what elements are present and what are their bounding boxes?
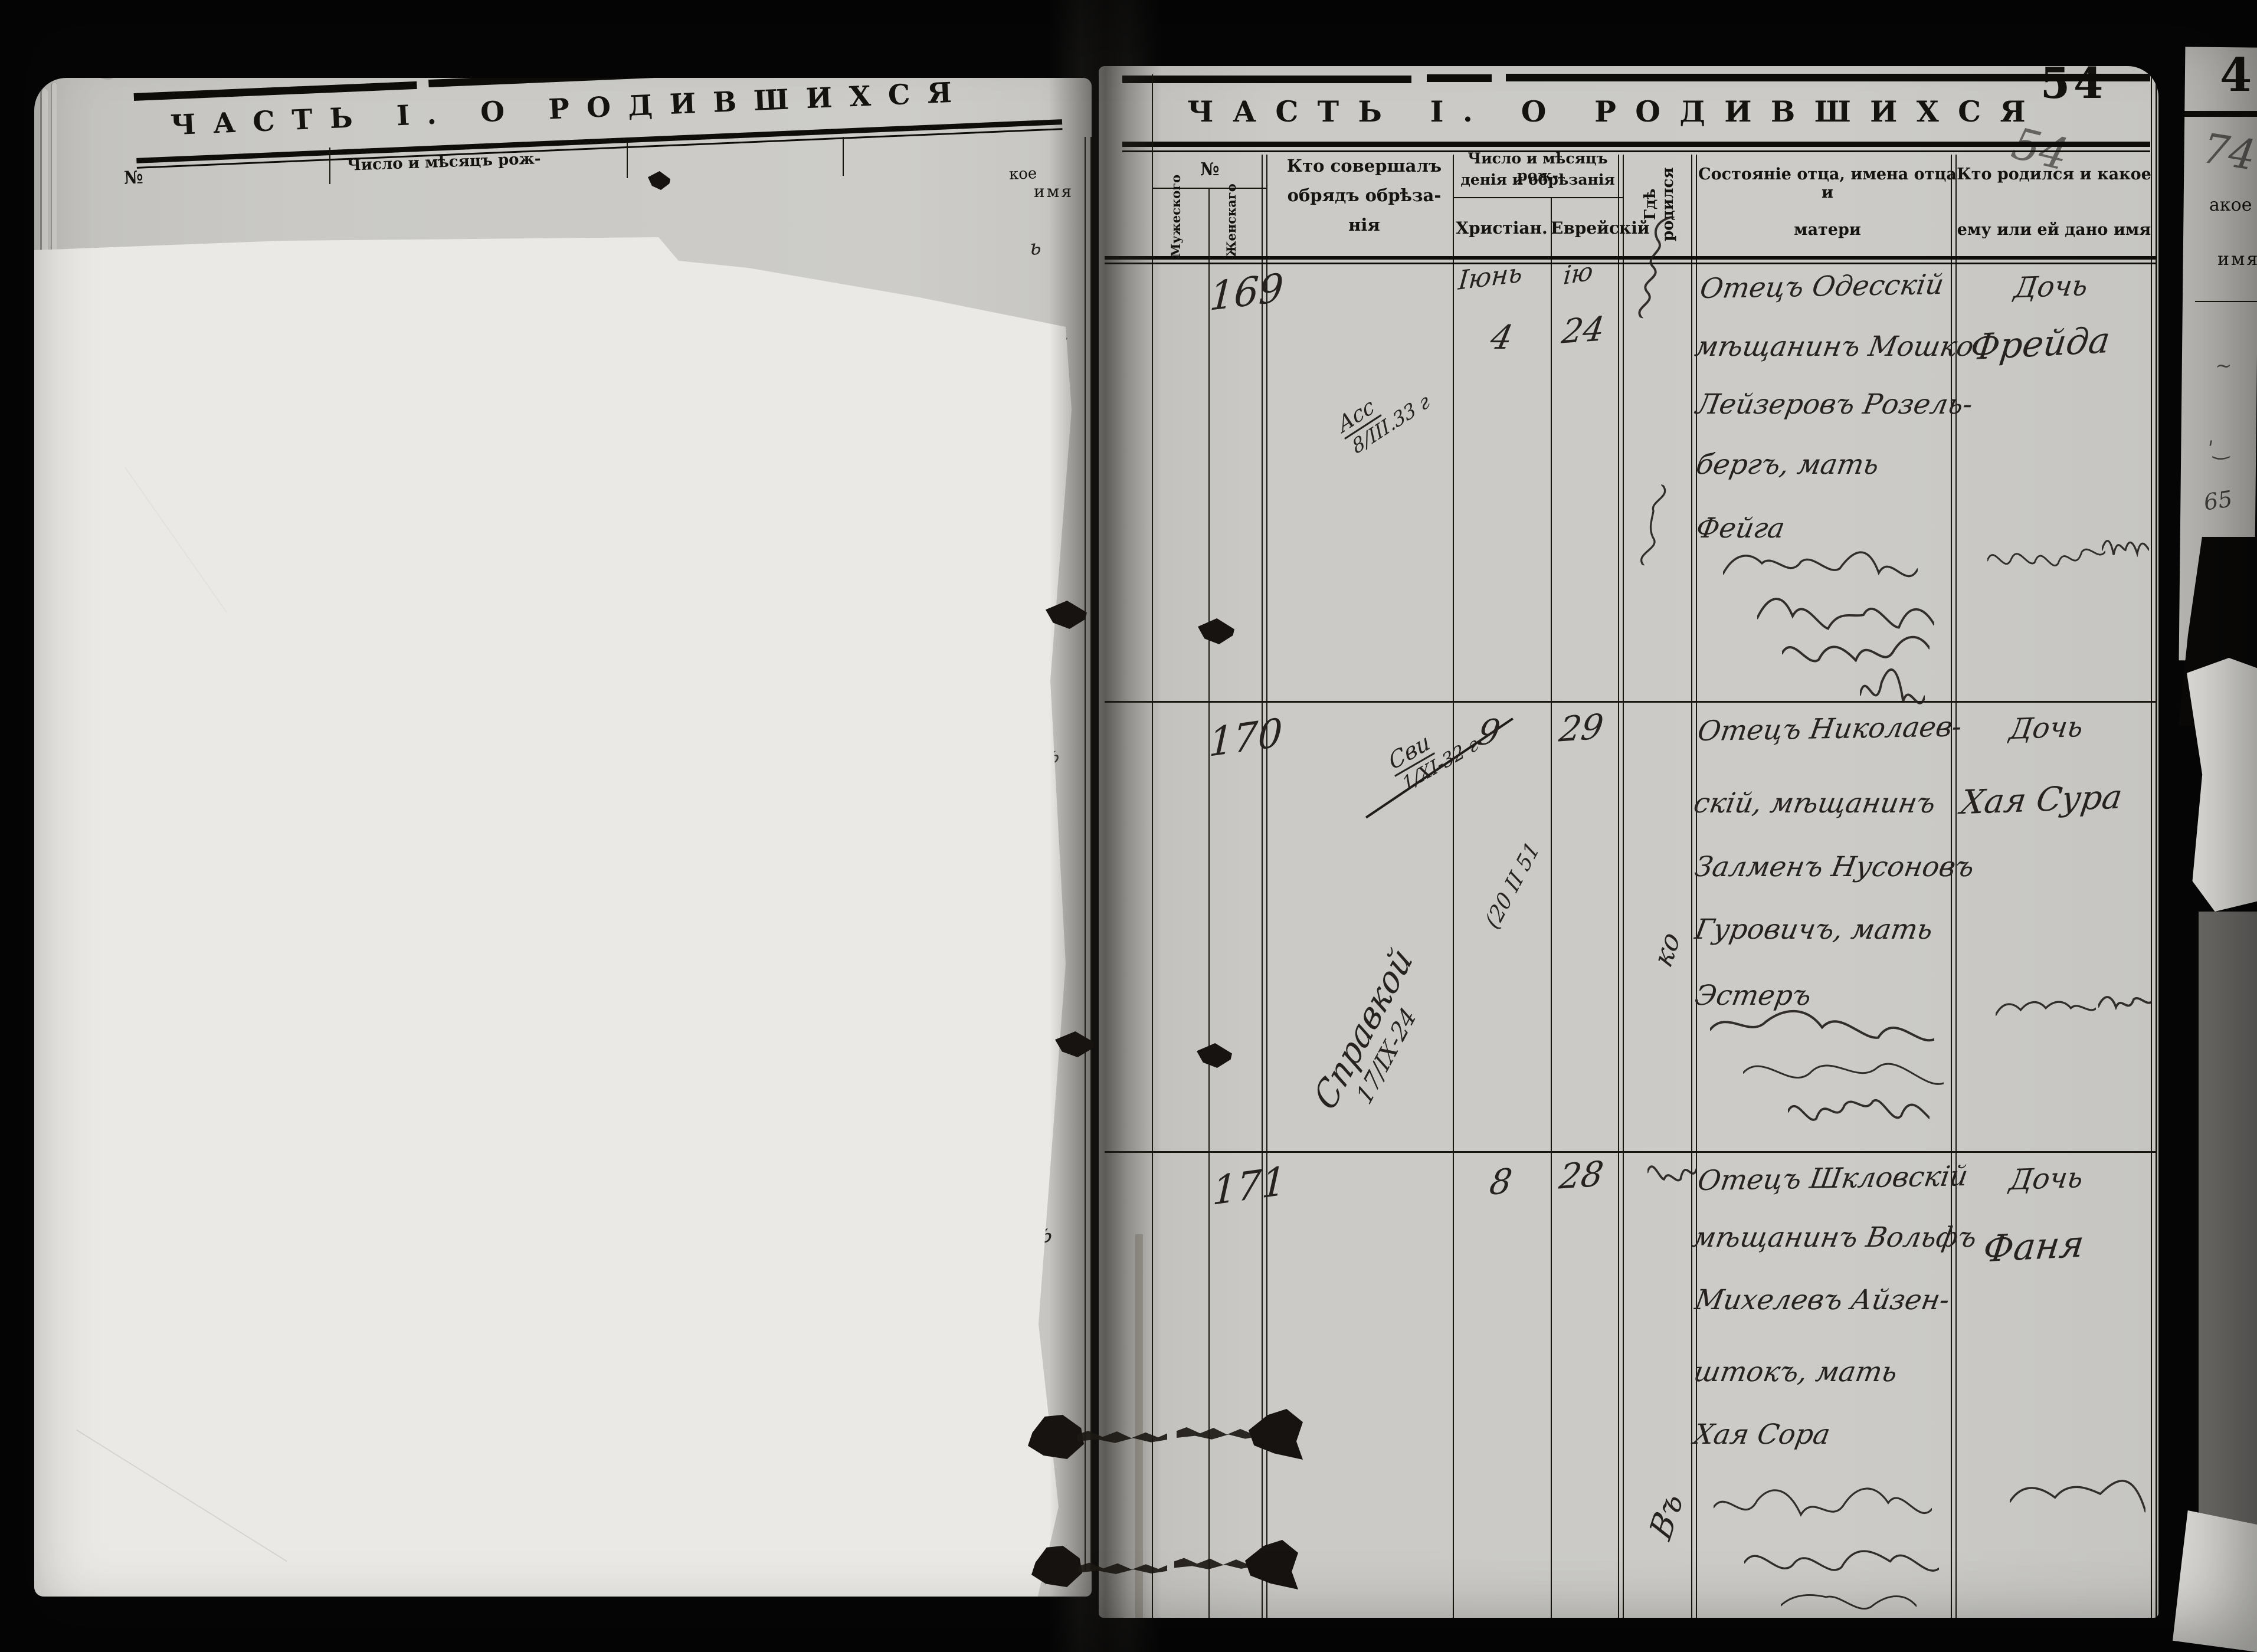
- right-page: 54 54 ЧАСТЬ I. О РОДИВШИХСЯ № Мужеского …: [1099, 66, 2158, 1618]
- col-header-child-2: ему или ей дано имя: [1957, 221, 2151, 239]
- printed-page-number: 54: [2040, 66, 2107, 108]
- father-record-line: Фейга: [1693, 512, 1787, 545]
- entry-number: 170: [1208, 709, 1283, 766]
- father-record-line: Отецъ Одесскій: [1698, 268, 1946, 305]
- hebrew-cursive-note: [1757, 595, 1934, 637]
- father-record-line: штокъ, мать: [1691, 1356, 1900, 1388]
- hebrew-cursive-note: [1723, 551, 1918, 592]
- table-line: [2156, 74, 2157, 1618]
- table-line: [1262, 155, 1263, 1618]
- hebrew-cursive-note: [1996, 999, 2096, 1028]
- behind-hw-fragment-2: ꞌ‿: [2208, 437, 2230, 460]
- col-header-officiant-3: нія: [1276, 215, 1453, 235]
- father-record-line: мѣщанинъ Вольфъ: [1690, 1221, 1979, 1254]
- binding-thread: [1135, 1234, 1143, 1618]
- behind-hw-fragment-1: ~: [2215, 354, 2232, 378]
- col-header-officiant-2: обрядъ обрѣза-: [1276, 185, 1453, 205]
- left-rule-top-a: [134, 81, 417, 101]
- col-header-child-1: Кто родился и какое: [1957, 165, 2151, 183]
- behind-bottom-torn-paper: [2173, 1510, 2257, 1652]
- father-record-line: Отецъ Шкловскій: [1695, 1160, 1970, 1197]
- right-page-title: ЧАСТЬ I. О РОДИВШИХСЯ: [1187, 94, 2045, 129]
- col-header-jewish: Еврейскій: [1551, 218, 1623, 238]
- behind-page-strip: 4 74 акое имя ~ ꞌ‿ 65: [2161, 24, 2257, 1652]
- table-line: [1951, 155, 1952, 1618]
- father-record-line: Лейзеровъ Розель-: [1693, 388, 1975, 421]
- child-name: Хая Сура: [1958, 778, 2125, 822]
- col-header-female: Женскаго: [1224, 191, 1239, 257]
- reference-annotation-diagonal: Справкой 17/ІХ-24: [1306, 939, 1447, 1124]
- christian-day: 9: [1475, 711, 1502, 753]
- behind-rule-mid: [2195, 301, 2257, 302]
- birthplace-script: ко: [1647, 926, 1686, 972]
- left-fragment-imya: имя: [1034, 182, 1073, 201]
- table-line: [1208, 188, 1210, 1618]
- ink-blot: [648, 171, 670, 190]
- behind-white-edge: [2187, 658, 2257, 912]
- christian-day: 4: [1487, 319, 1516, 357]
- scanned-register-spread: 4 74 акое имя ~ ꞌ‿ 65 53 ЧАСТЬ I. О РОДИ…: [0, 0, 2257, 1652]
- right-rule-top-c: [1506, 74, 2150, 81]
- hebrew-cursive-note: [1987, 542, 2105, 576]
- officiant-annotation: Асс 8/ІІІ.33 г: [1335, 367, 1436, 457]
- birthplace-flourish: [1647, 1155, 1697, 1186]
- child-title: Дочь: [2007, 710, 2085, 746]
- behind-fragment-kakoe: акое: [2209, 195, 2252, 215]
- birthplace-script: Въ: [1643, 1486, 1690, 1546]
- left-col-no: №: [123, 167, 143, 188]
- sheet-crease: [125, 467, 227, 613]
- table-line: [2151, 74, 2152, 1618]
- hebrew-cursive-note: [1744, 1540, 1939, 1581]
- hebrew-cursive-note: [1782, 632, 1930, 670]
- left-col-line-1: [329, 147, 330, 184]
- father-record-line: Хая Сора: [1691, 1418, 1833, 1451]
- behind-fragment-imya: имя: [2217, 249, 2257, 270]
- table-line: [1623, 155, 1624, 1618]
- right-rule-title-b: [1122, 150, 2150, 152]
- small-date-annotation: (20 ІІ 51: [1481, 837, 1544, 933]
- birthplace-script: [1631, 482, 1676, 568]
- header-bottom-rule-b: [1105, 263, 2156, 264]
- left-edge-rule-b: [1090, 137, 1092, 1571]
- child-title: Дочь: [2007, 1161, 2085, 1197]
- col-header-no: №: [1200, 159, 1220, 180]
- table-line: [1266, 155, 1267, 1618]
- behind-lower-strip: [2199, 912, 2257, 1537]
- behind-page-number: 4: [2220, 48, 2252, 102]
- right-rule-title-a: [1122, 142, 2150, 147]
- behind-pencil-number: 74: [2199, 124, 2257, 180]
- jewish-day: 29: [1557, 706, 1606, 750]
- left-col-line-2: [627, 142, 628, 178]
- col-header-officiant-1: Кто совершалъ: [1276, 156, 1453, 176]
- father-record-line: Михелевъ Айзен-: [1692, 1284, 1952, 1316]
- left-pencil-page-number: 53: [76, 78, 124, 88]
- col-header-parents-2: матери: [1697, 221, 1958, 239]
- father-record-line: скій, мѣщанинъ: [1691, 787, 1938, 820]
- hebrew-cursive-note: [1781, 1592, 1917, 1617]
- col-header-male: Мужеского: [1168, 191, 1183, 257]
- child-title: Дочь: [2012, 269, 2090, 305]
- row-divider-1: [1105, 701, 2156, 703]
- entry-number: 169: [1208, 265, 1285, 320]
- hebrew-cursive-note: [1743, 1050, 1944, 1091]
- table-line: [1696, 155, 1697, 1618]
- father-record-line: Эстеръ: [1692, 979, 1814, 1012]
- table-line: [1618, 155, 1619, 1618]
- christian-day: 8: [1487, 1161, 1514, 1202]
- child-name: Фаня: [1981, 1222, 2086, 1270]
- jewish-day: 24: [1560, 310, 1607, 352]
- right-rule-top-b: [1427, 74, 1492, 82]
- left-page: 53 ЧАСТЬ I. О РОДИВШИХСЯ № Число и мѣсяц…: [34, 78, 1092, 1597]
- hebrew-cursive-note: [1788, 1093, 1930, 1127]
- col-header-christian: Христіан.: [1453, 218, 1551, 238]
- child-name: Фрейда: [1968, 320, 2112, 369]
- hebrew-cursive-note: [1710, 1008, 1934, 1048]
- father-record-line: Отецъ Николаев-: [1695, 710, 1964, 748]
- table-line: [1551, 197, 1552, 1618]
- entry-number: 171: [1211, 1158, 1286, 1214]
- hebrew-cursive-flourish: [1860, 666, 1925, 719]
- father-record-line: бергъ, мать: [1693, 448, 1881, 481]
- header-bottom-rule-a: [1105, 256, 2156, 260]
- right-rule-top-a: [1122, 76, 1411, 83]
- jewish-day: 28: [1557, 1153, 1606, 1197]
- col-header-dates-2: денія и обрѣзанія: [1453, 171, 1623, 188]
- hebrew-cursive-note: [2010, 1480, 2145, 1520]
- jewish-month: ію: [1562, 256, 1594, 290]
- officiant-annotation-crossed: Сви 1/ХІ-32 г: [1385, 708, 1485, 794]
- father-record-line: Гуровичъ, мать: [1692, 913, 1935, 946]
- hebrew-cursive-note: [2102, 536, 2149, 562]
- col-header-parents-1: Состояніе отца, имена отца и: [1697, 165, 1958, 202]
- father-record-line: Залменъ Нусоновъ: [1692, 851, 1977, 883]
- left-fragment-kakoe: кое: [1008, 165, 1037, 183]
- left-header-band: ЧАСТЬ I. О РОДИВШИХСЯ: [133, 78, 1063, 179]
- hebrew-cursive-note: [1714, 1483, 1932, 1527]
- white-cover-sheet: [34, 232, 1090, 1597]
- behind-hw-fragment-65: 65: [2202, 486, 2234, 515]
- table-line: [1955, 155, 1957, 1618]
- left-col-line-3: [843, 137, 844, 176]
- father-record-line: мѣщанинъ Мошко: [1692, 330, 1976, 363]
- hebrew-cursive-note: [2098, 994, 2151, 1017]
- left-edge-fragment: ь: [1030, 235, 1042, 260]
- row-divider-2: [1105, 1151, 2156, 1153]
- table-line: [1152, 74, 1153, 1618]
- rule-under-dates: [1453, 197, 1624, 198]
- left-edge-rule-a: [1085, 137, 1086, 1571]
- table-line: [1691, 155, 1692, 1618]
- behind-rule-top: [2184, 111, 2257, 117]
- sheet-crease: [76, 1430, 287, 1562]
- table-line: [1453, 155, 1454, 1618]
